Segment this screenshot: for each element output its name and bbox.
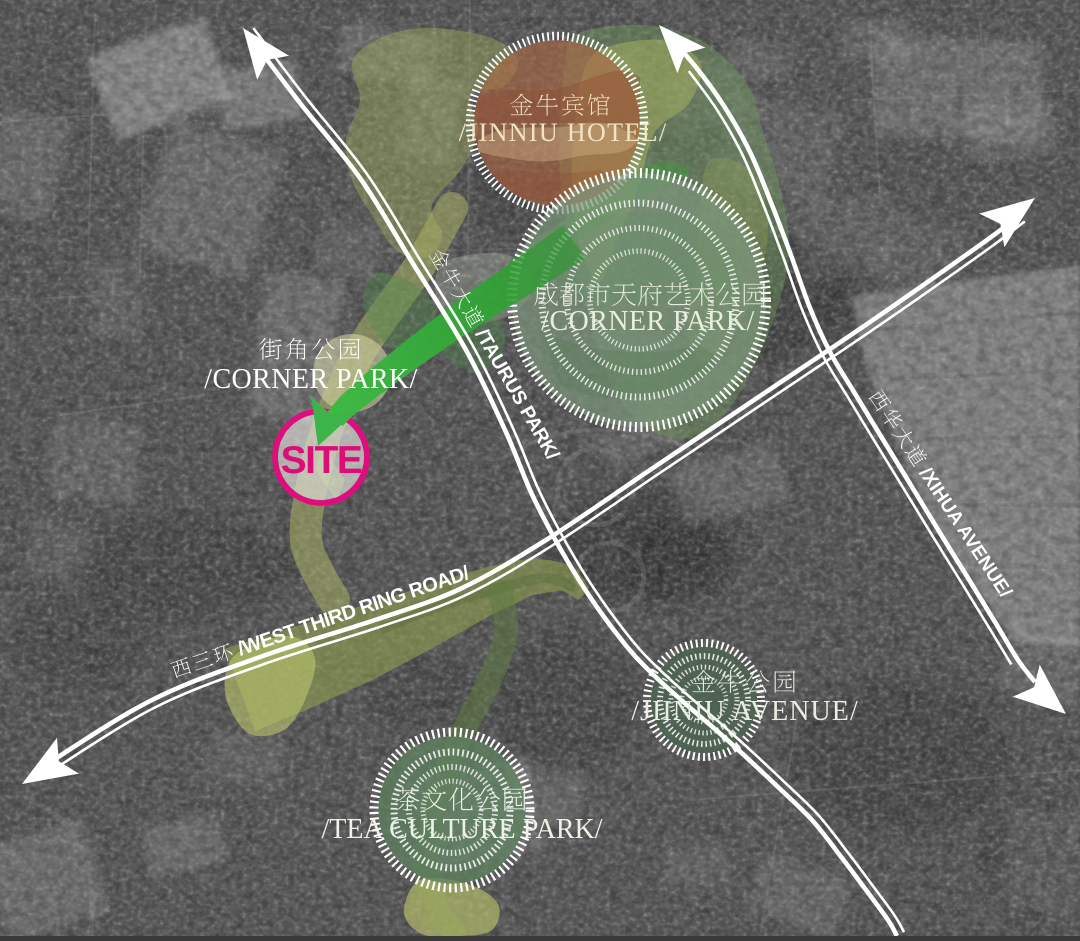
svg-text:/TEA CULTURE PARK/: /TEA CULTURE PARK/ [321,814,602,845]
svg-text:/JINNIU HOTEL/: /JINNIU HOTEL/ [459,118,668,147]
svg-text:/JIINIU AVENUE/: /JIINIU AVENUE/ [631,696,859,727]
svg-text:SITE: SITE [281,439,362,482]
svg-text:/CORNER PARK/: /CORNER PARK/ [541,306,754,337]
svg-text:/CORNER PARK/: /CORNER PARK/ [204,364,417,395]
